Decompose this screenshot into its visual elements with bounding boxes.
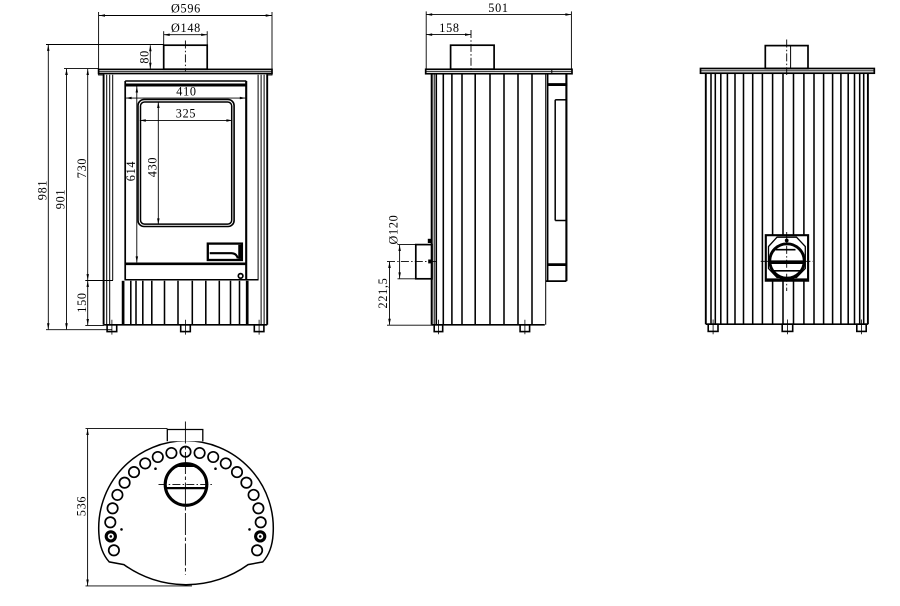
svg-text:221,5: 221,5 xyxy=(376,278,390,309)
svg-text:430: 430 xyxy=(145,157,159,177)
svg-text:730: 730 xyxy=(75,158,89,178)
svg-text:901: 901 xyxy=(54,189,68,209)
svg-text:981: 981 xyxy=(35,180,49,200)
svg-text:501: 501 xyxy=(488,1,508,15)
svg-text:150: 150 xyxy=(75,292,89,312)
svg-text:80: 80 xyxy=(137,50,151,64)
svg-text:Ø596: Ø596 xyxy=(171,2,201,16)
svg-text:536: 536 xyxy=(75,496,89,516)
svg-text:410: 410 xyxy=(176,85,196,99)
svg-text:Ø120: Ø120 xyxy=(387,215,401,245)
svg-text:325: 325 xyxy=(176,107,196,121)
svg-text:614: 614 xyxy=(124,161,138,181)
svg-text:158: 158 xyxy=(439,21,459,35)
svg-text:Ø148: Ø148 xyxy=(171,21,201,35)
